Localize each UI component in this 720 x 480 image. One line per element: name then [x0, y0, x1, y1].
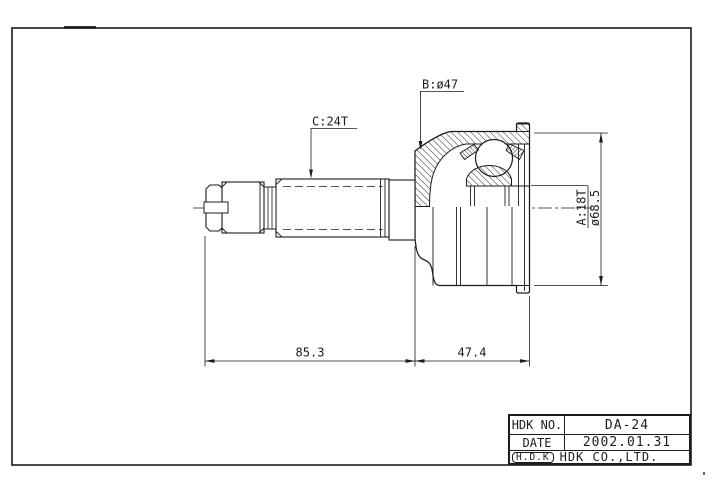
- hdk-logo: H.D.K: [512, 452, 554, 464]
- dim-joint-length: 47.4: [458, 346, 487, 360]
- dimension-arrows: [205, 133, 603, 363]
- hdk-no-label: HDK NO.: [510, 416, 565, 434]
- shaft: [204, 179, 415, 240]
- title-block-row-date: DATE 2002.01.31: [510, 435, 689, 451]
- label-a-spline: A:18T: [575, 189, 589, 225]
- joint-housing: [415, 123, 530, 293]
- scanned-drawing-page: C:24T B:ø47 A:18T ø68.5 85.3 47.4 HDK NO…: [0, 0, 720, 480]
- date-value: 2002.01.31: [565, 435, 689, 450]
- label-c-spline: C:24T: [312, 115, 348, 129]
- label-outer-diameter: ø68.5: [588, 190, 602, 226]
- cv-joint-drawing: C:24T B:ø47 A:18T ø68.5 85.3 47.4: [0, 0, 720, 480]
- thread-relief: [264, 187, 276, 229]
- label-b-diameter: B:ø47: [422, 78, 458, 92]
- date-label: DATE: [510, 435, 565, 450]
- spline-section: [276, 179, 389, 237]
- hdk-no-value: DA-24: [565, 416, 689, 434]
- tip-slot: [204, 202, 228, 213]
- title-block: HDK NO. DA-24 DATE 2002.01.31 H.D.K HDK …: [508, 414, 691, 465]
- company-name: HDK CO.,LTD.: [560, 450, 659, 464]
- drawing-frame: [12, 28, 691, 465]
- scan-speck: [703, 472, 705, 475]
- title-block-row-company: H.D.K HDK CO.,LTD.: [510, 451, 689, 464]
- boot-collar: [389, 180, 415, 240]
- title-block-row-no: HDK NO. DA-24: [510, 416, 689, 435]
- dim-shaft-length: 85.3: [296, 346, 325, 360]
